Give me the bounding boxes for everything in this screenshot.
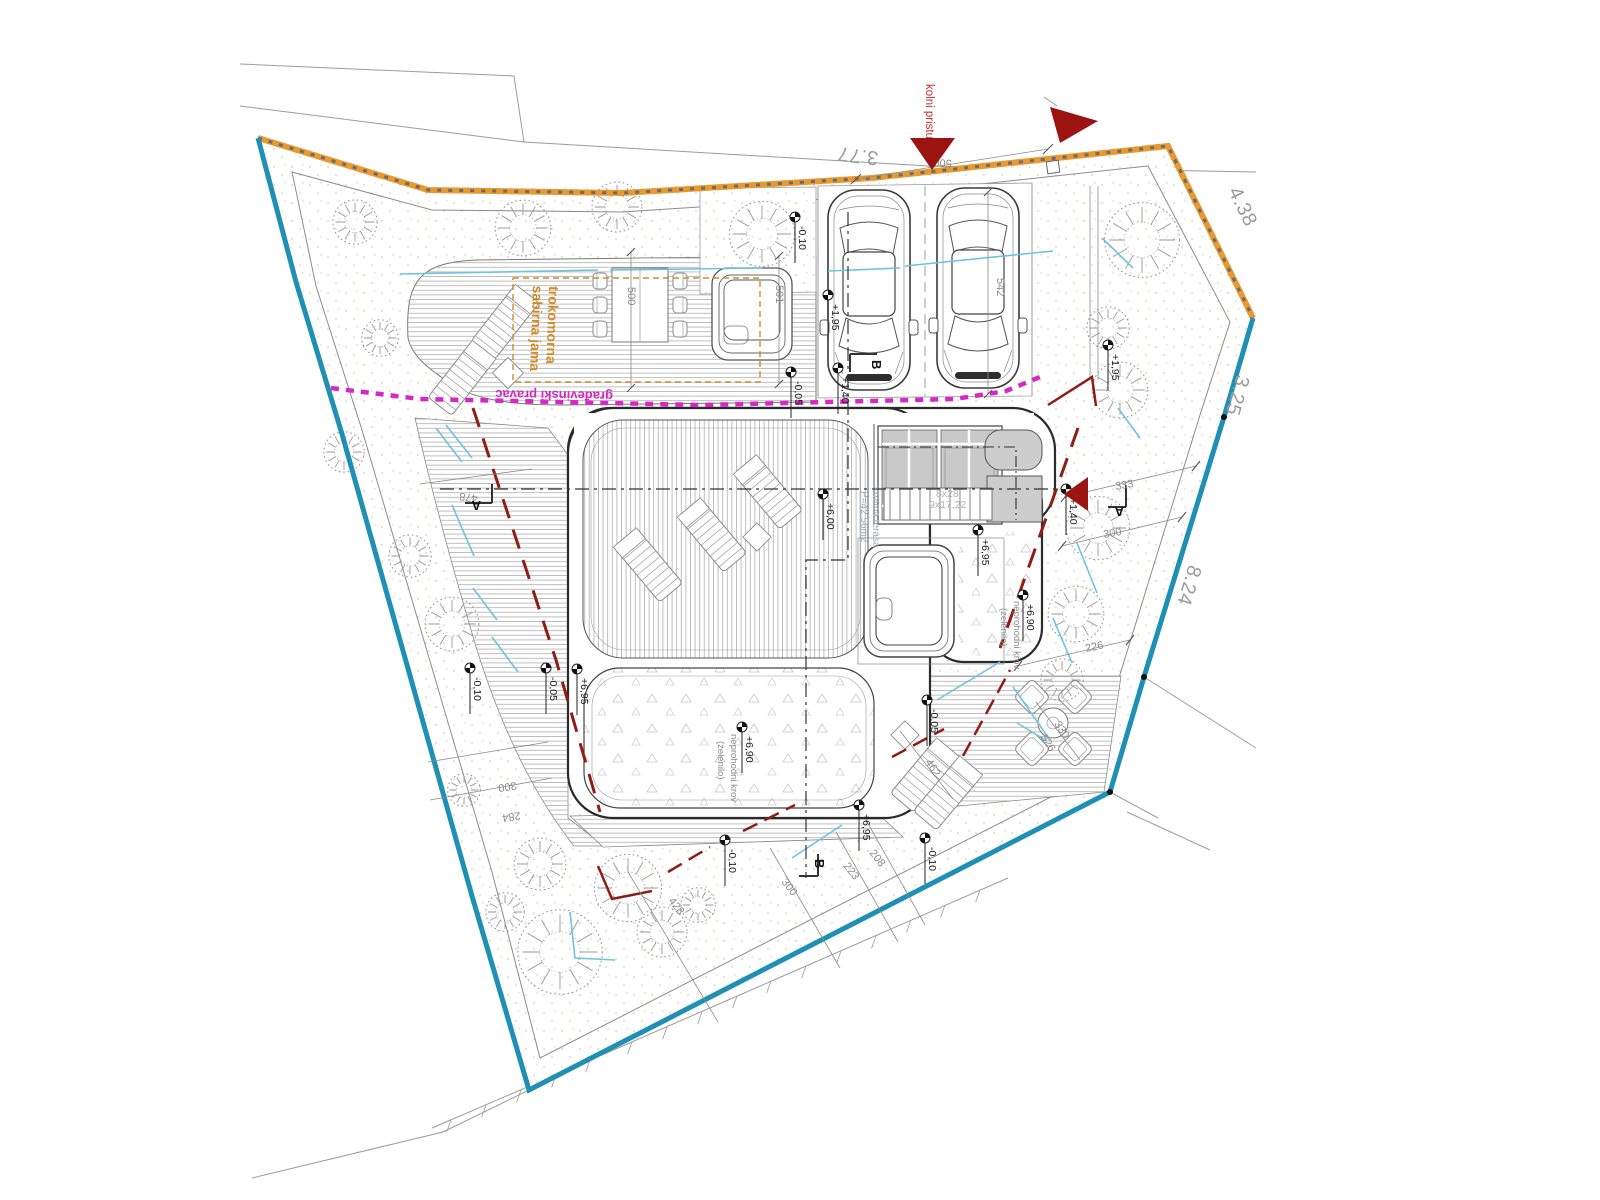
level-value: +6,00	[824, 503, 836, 530]
green-roof-label: neprohodni krov	[728, 734, 739, 802]
boundary-length: 3.77	[836, 142, 879, 169]
level-value: -0,10	[471, 677, 483, 701]
roof-terrace-area: P=42,56m2	[858, 491, 869, 543]
roof-terrace-label: krovna terasa	[870, 487, 881, 548]
level-value: +6,95	[578, 678, 590, 705]
site-plan-drawing: -0,10 +1,95 +1,40 -0,05 +1,95 +1,40 +6,0…	[0, 0, 1600, 1200]
access-arrow	[1050, 107, 1098, 143]
dim-label: 542	[994, 278, 1006, 296]
svg-text:sabirna jama: sabirna jama	[527, 285, 546, 371]
level-value: +1,95	[1109, 354, 1121, 381]
section-mark-a: A	[1114, 504, 1124, 519]
spa-tub	[712, 268, 792, 360]
roof-rooms	[985, 430, 1042, 522]
green-roof-label: (zelenilo)	[715, 741, 726, 780]
level-value: -0,10	[926, 847, 938, 871]
dim-label: 284	[501, 809, 521, 823]
green-roof-label: neprohodni krov	[1011, 601, 1022, 669]
green-roof-label: (zelenilo)	[998, 608, 1009, 647]
level-value: -0,05	[928, 709, 940, 733]
jacuzzi	[864, 545, 954, 657]
septic-label: trokomorna sabirna jama	[527, 285, 562, 372]
car-left	[820, 190, 918, 390]
section-mark-b: B	[812, 859, 827, 868]
level-value: -0,10	[726, 849, 738, 873]
level-value: -0,05	[792, 381, 804, 405]
gate-mark	[1046, 160, 1060, 174]
level-value: +6,95	[979, 539, 991, 566]
level-value: +6,90	[1024, 604, 1036, 631]
dim-label: 501	[773, 285, 785, 303]
section-mark-b: B	[869, 360, 884, 369]
car-right	[929, 188, 1027, 388]
stair-label: 9x17,22	[929, 499, 967, 511]
site-plan-canvas: -0,10 +1,95 +1,40 -0,05 +1,95 +1,40 +6,0…	[0, 0, 1600, 1200]
level-value: -0,10	[796, 226, 808, 250]
section-mark-a: A	[471, 498, 481, 513]
level-value: +6,95	[860, 814, 872, 841]
level-value: +1,40	[839, 377, 851, 404]
access-label: kolni pristup	[923, 84, 935, 145]
regulation-label: građevinski pravac	[495, 387, 613, 404]
level-value: +1,95	[829, 304, 841, 331]
dim-label: 500	[625, 287, 637, 305]
level-value: -0,05	[547, 677, 559, 701]
dim-label: 300	[497, 779, 517, 793]
level-value: +6,90	[743, 736, 755, 763]
boundary-length: 4.38	[1224, 184, 1262, 230]
